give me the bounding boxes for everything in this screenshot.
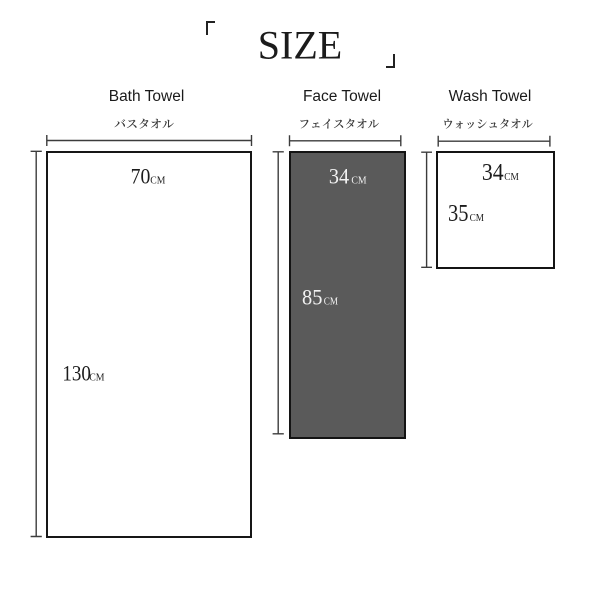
svg-text:130: 130 (62, 361, 91, 386)
svg-text:70: 70 (131, 164, 151, 189)
svg-text:CM: CM (504, 171, 519, 183)
svg-text:CM: CM (89, 372, 105, 384)
svg-text:34: 34 (329, 164, 349, 189)
svg-text:CM: CM (470, 212, 485, 224)
svg-text:CM: CM (150, 175, 166, 187)
svg-text:CM: CM (324, 295, 339, 307)
svg-text:34: 34 (482, 159, 504, 186)
svg-text:CM: CM (351, 175, 367, 187)
svg-text:35: 35 (448, 200, 469, 227)
svg-text:85: 85 (302, 284, 322, 309)
